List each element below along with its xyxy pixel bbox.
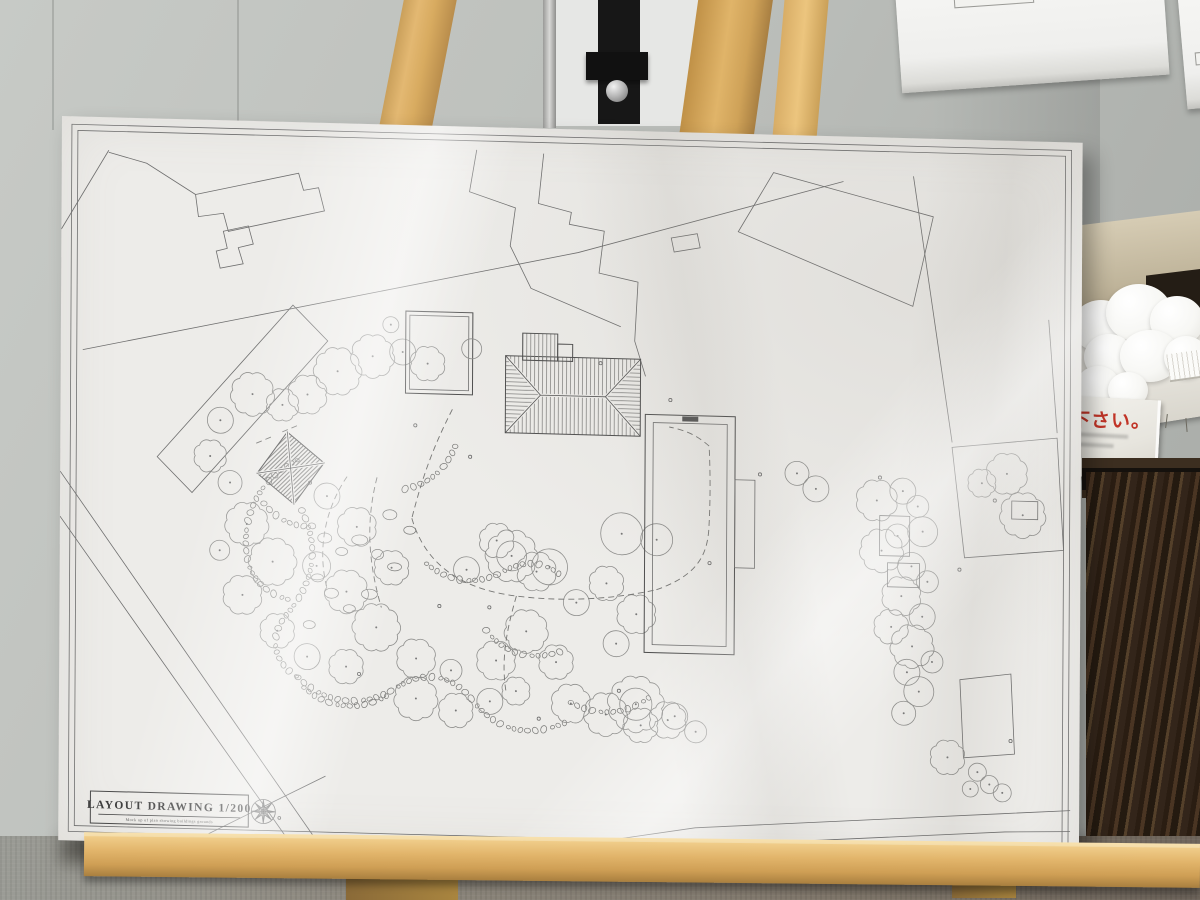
whiteboard-frame bbox=[543, 0, 556, 128]
site-plan-drawing: LAYOUT DRAWING 1/200 Mock up of plan sho… bbox=[58, 116, 1082, 867]
plan-title: LAYOUT DRAWING 1/200 bbox=[87, 799, 252, 815]
plan-details bbox=[303, 354, 1014, 743]
wall-seam bbox=[237, 0, 239, 130]
model-building bbox=[1166, 350, 1200, 382]
panel-label-strip bbox=[954, 0, 1035, 8]
clamp-knob bbox=[606, 80, 628, 102]
photo-scene: 下さい。 bbox=[0, 0, 1200, 900]
plan-border bbox=[68, 124, 1071, 857]
compass-rose bbox=[251, 799, 281, 824]
plan-subtitle: Mock up of plan showing buildings ground… bbox=[126, 817, 213, 824]
title-block: LAYOUT DRAWING 1/200 Mock up of plan sho… bbox=[87, 791, 252, 827]
wall-seam bbox=[52, 0, 54, 130]
layout-drawing-board: LAYOUT DRAWING 1/200 Mock up of plan sho… bbox=[58, 116, 1082, 867]
parcel-outlines bbox=[58, 139, 1073, 867]
buildings bbox=[256, 307, 756, 655]
easel-leg-lower bbox=[346, 878, 458, 900]
easel-clamp bbox=[586, 52, 648, 80]
card-text: 下さい。 bbox=[1071, 405, 1151, 433]
panel-label-strip bbox=[1195, 45, 1200, 65]
